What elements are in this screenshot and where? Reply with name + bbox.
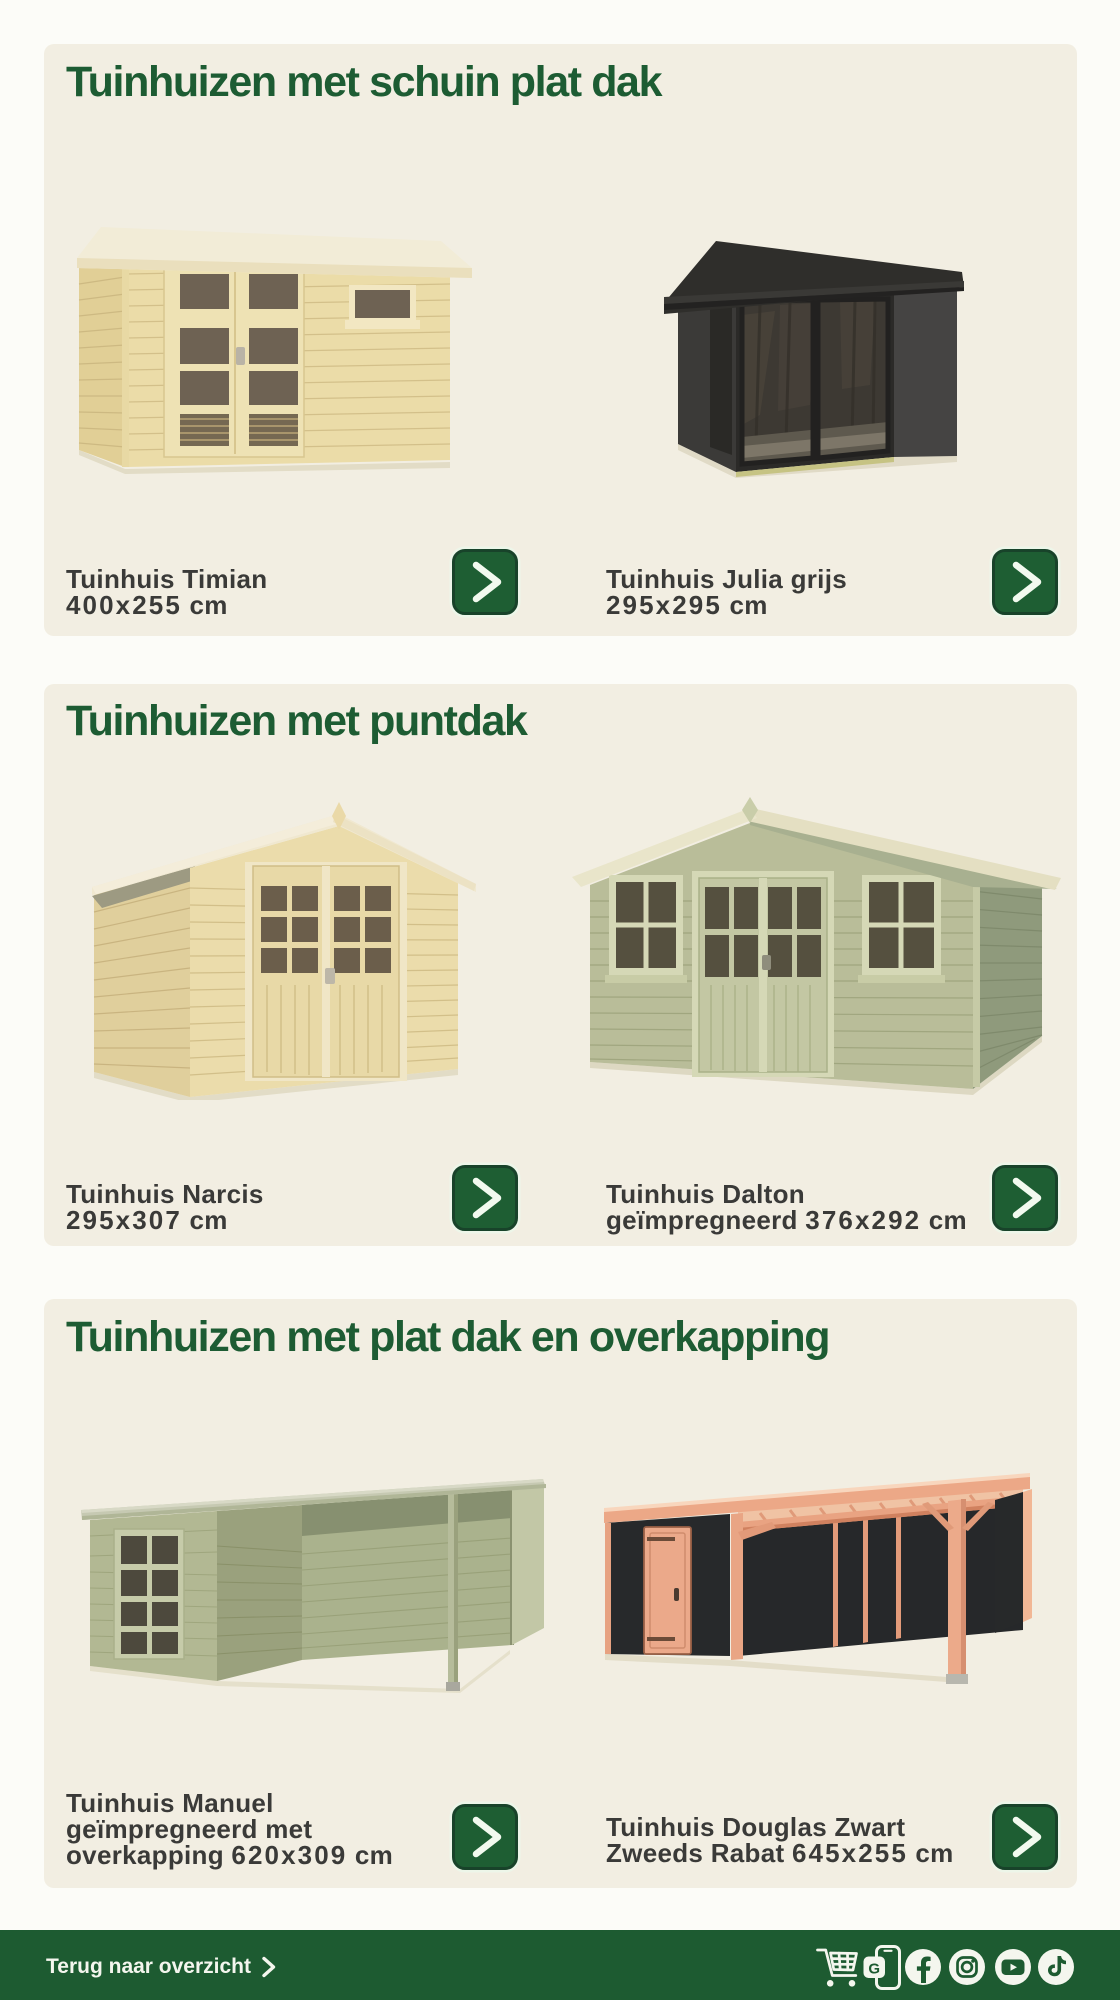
svg-text:G: G <box>868 1960 880 1977</box>
